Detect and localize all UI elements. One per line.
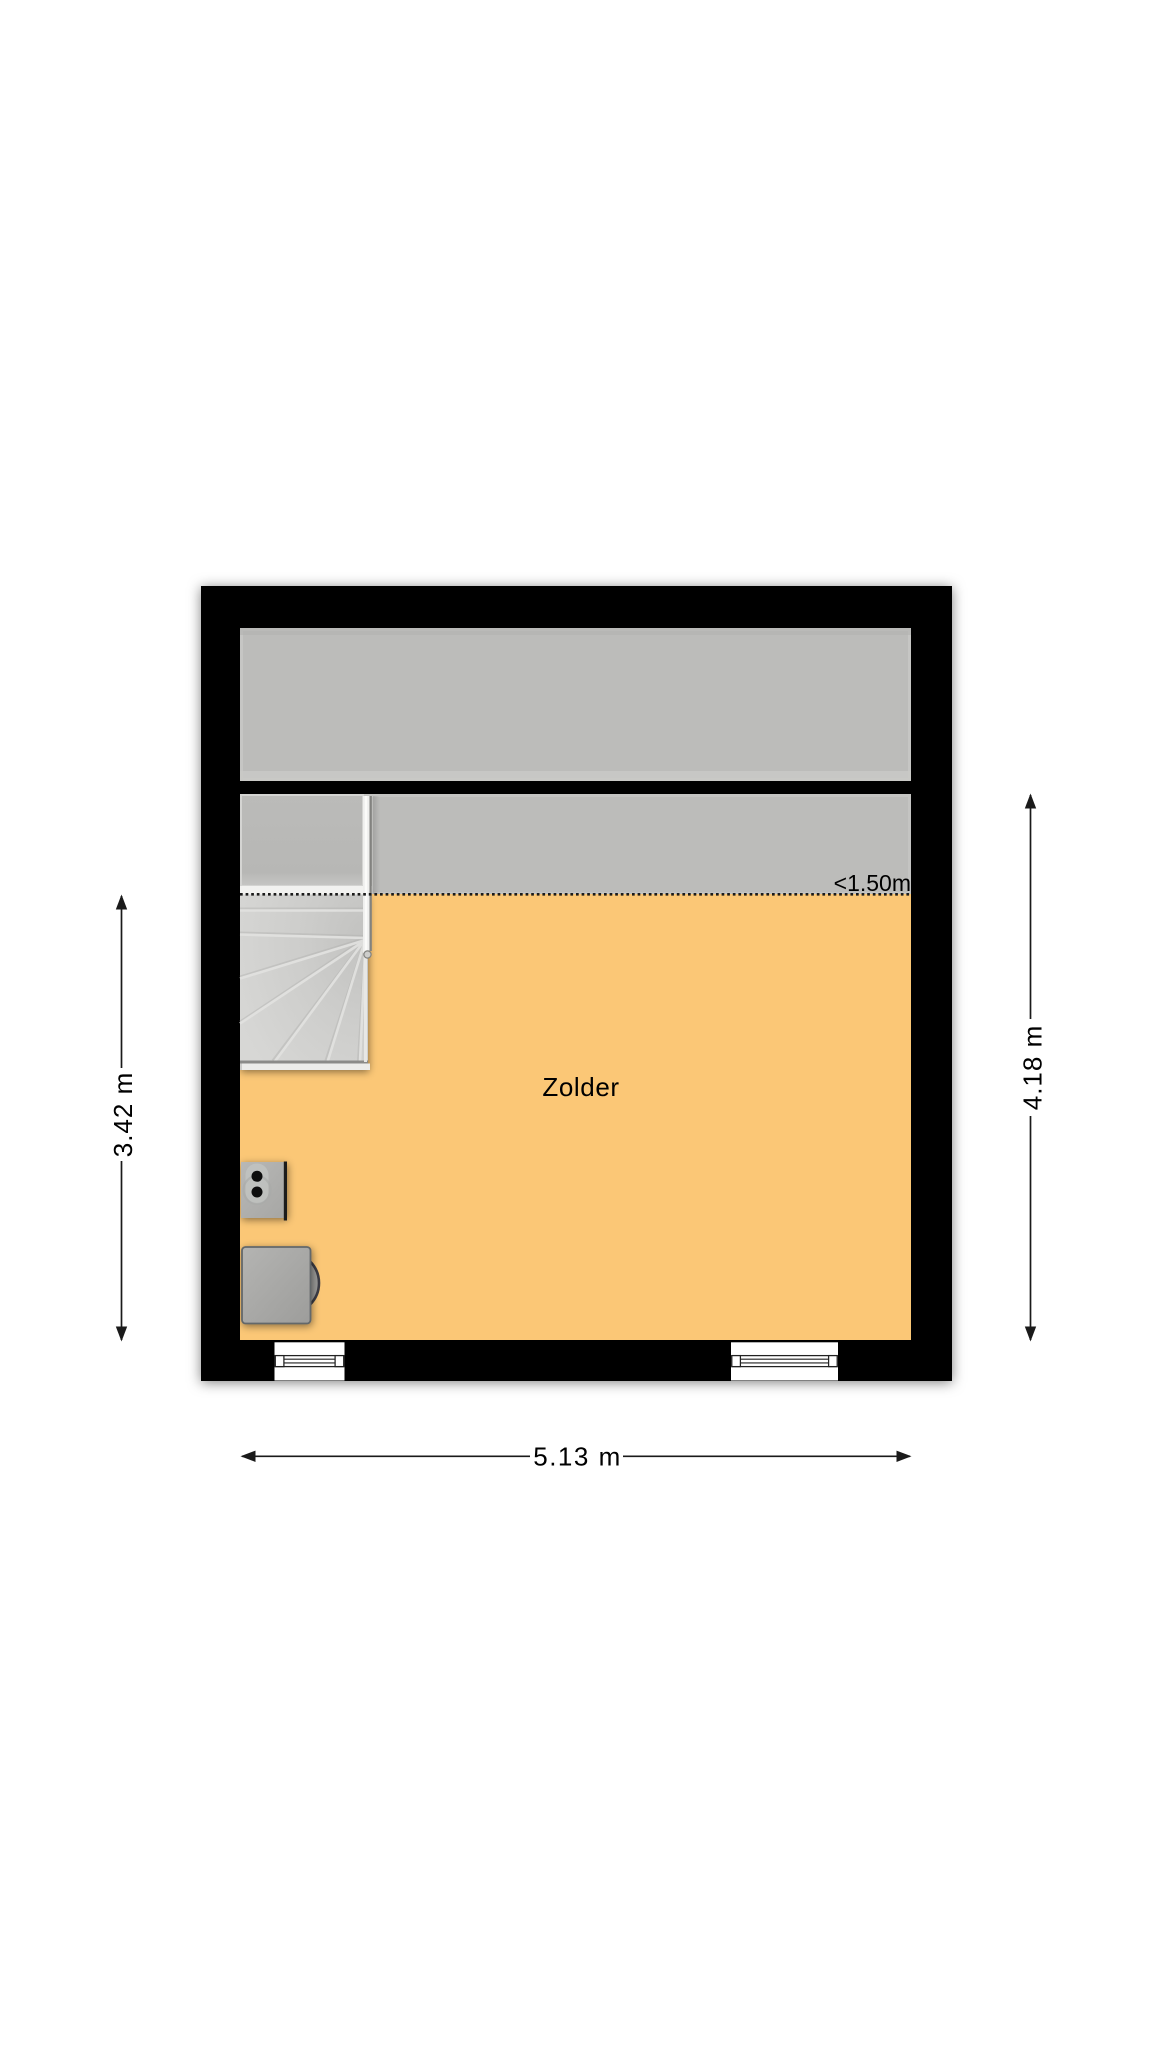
svg-text:5.13 m: 5.13 m xyxy=(533,1441,622,1471)
svg-text:Zolder: Zolder xyxy=(542,1072,619,1102)
svg-text:4.18 m: 4.18 m xyxy=(1018,1025,1048,1111)
svg-text:<1.50m: <1.50m xyxy=(834,870,911,896)
svg-text:3.42 m: 3.42 m xyxy=(108,1072,138,1158)
